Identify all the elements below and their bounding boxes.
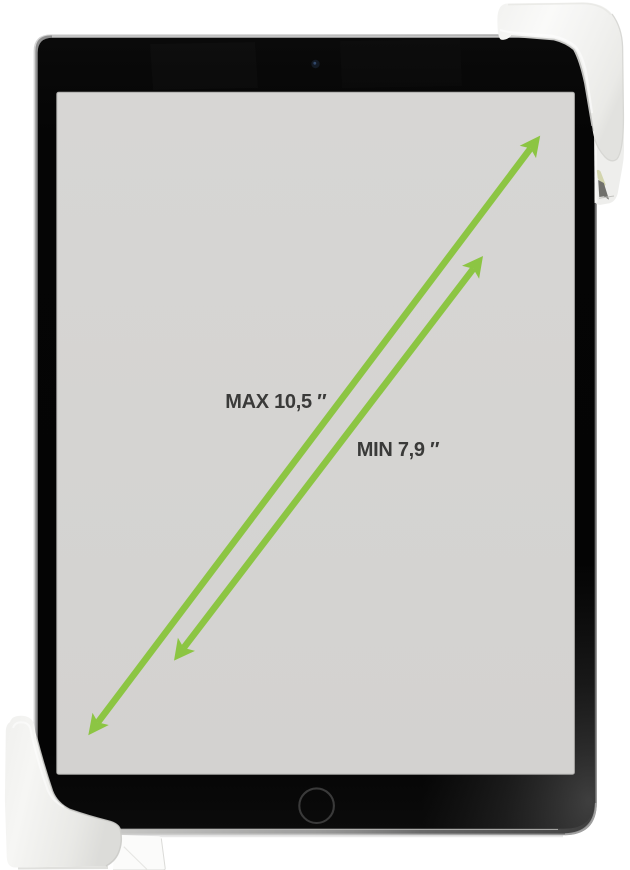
svg-text:MAX 10,5 ″: MAX 10,5 ″ (225, 391, 327, 413)
svg-text:MIN 7,9 ″: MIN 7,9 ″ (357, 439, 440, 461)
